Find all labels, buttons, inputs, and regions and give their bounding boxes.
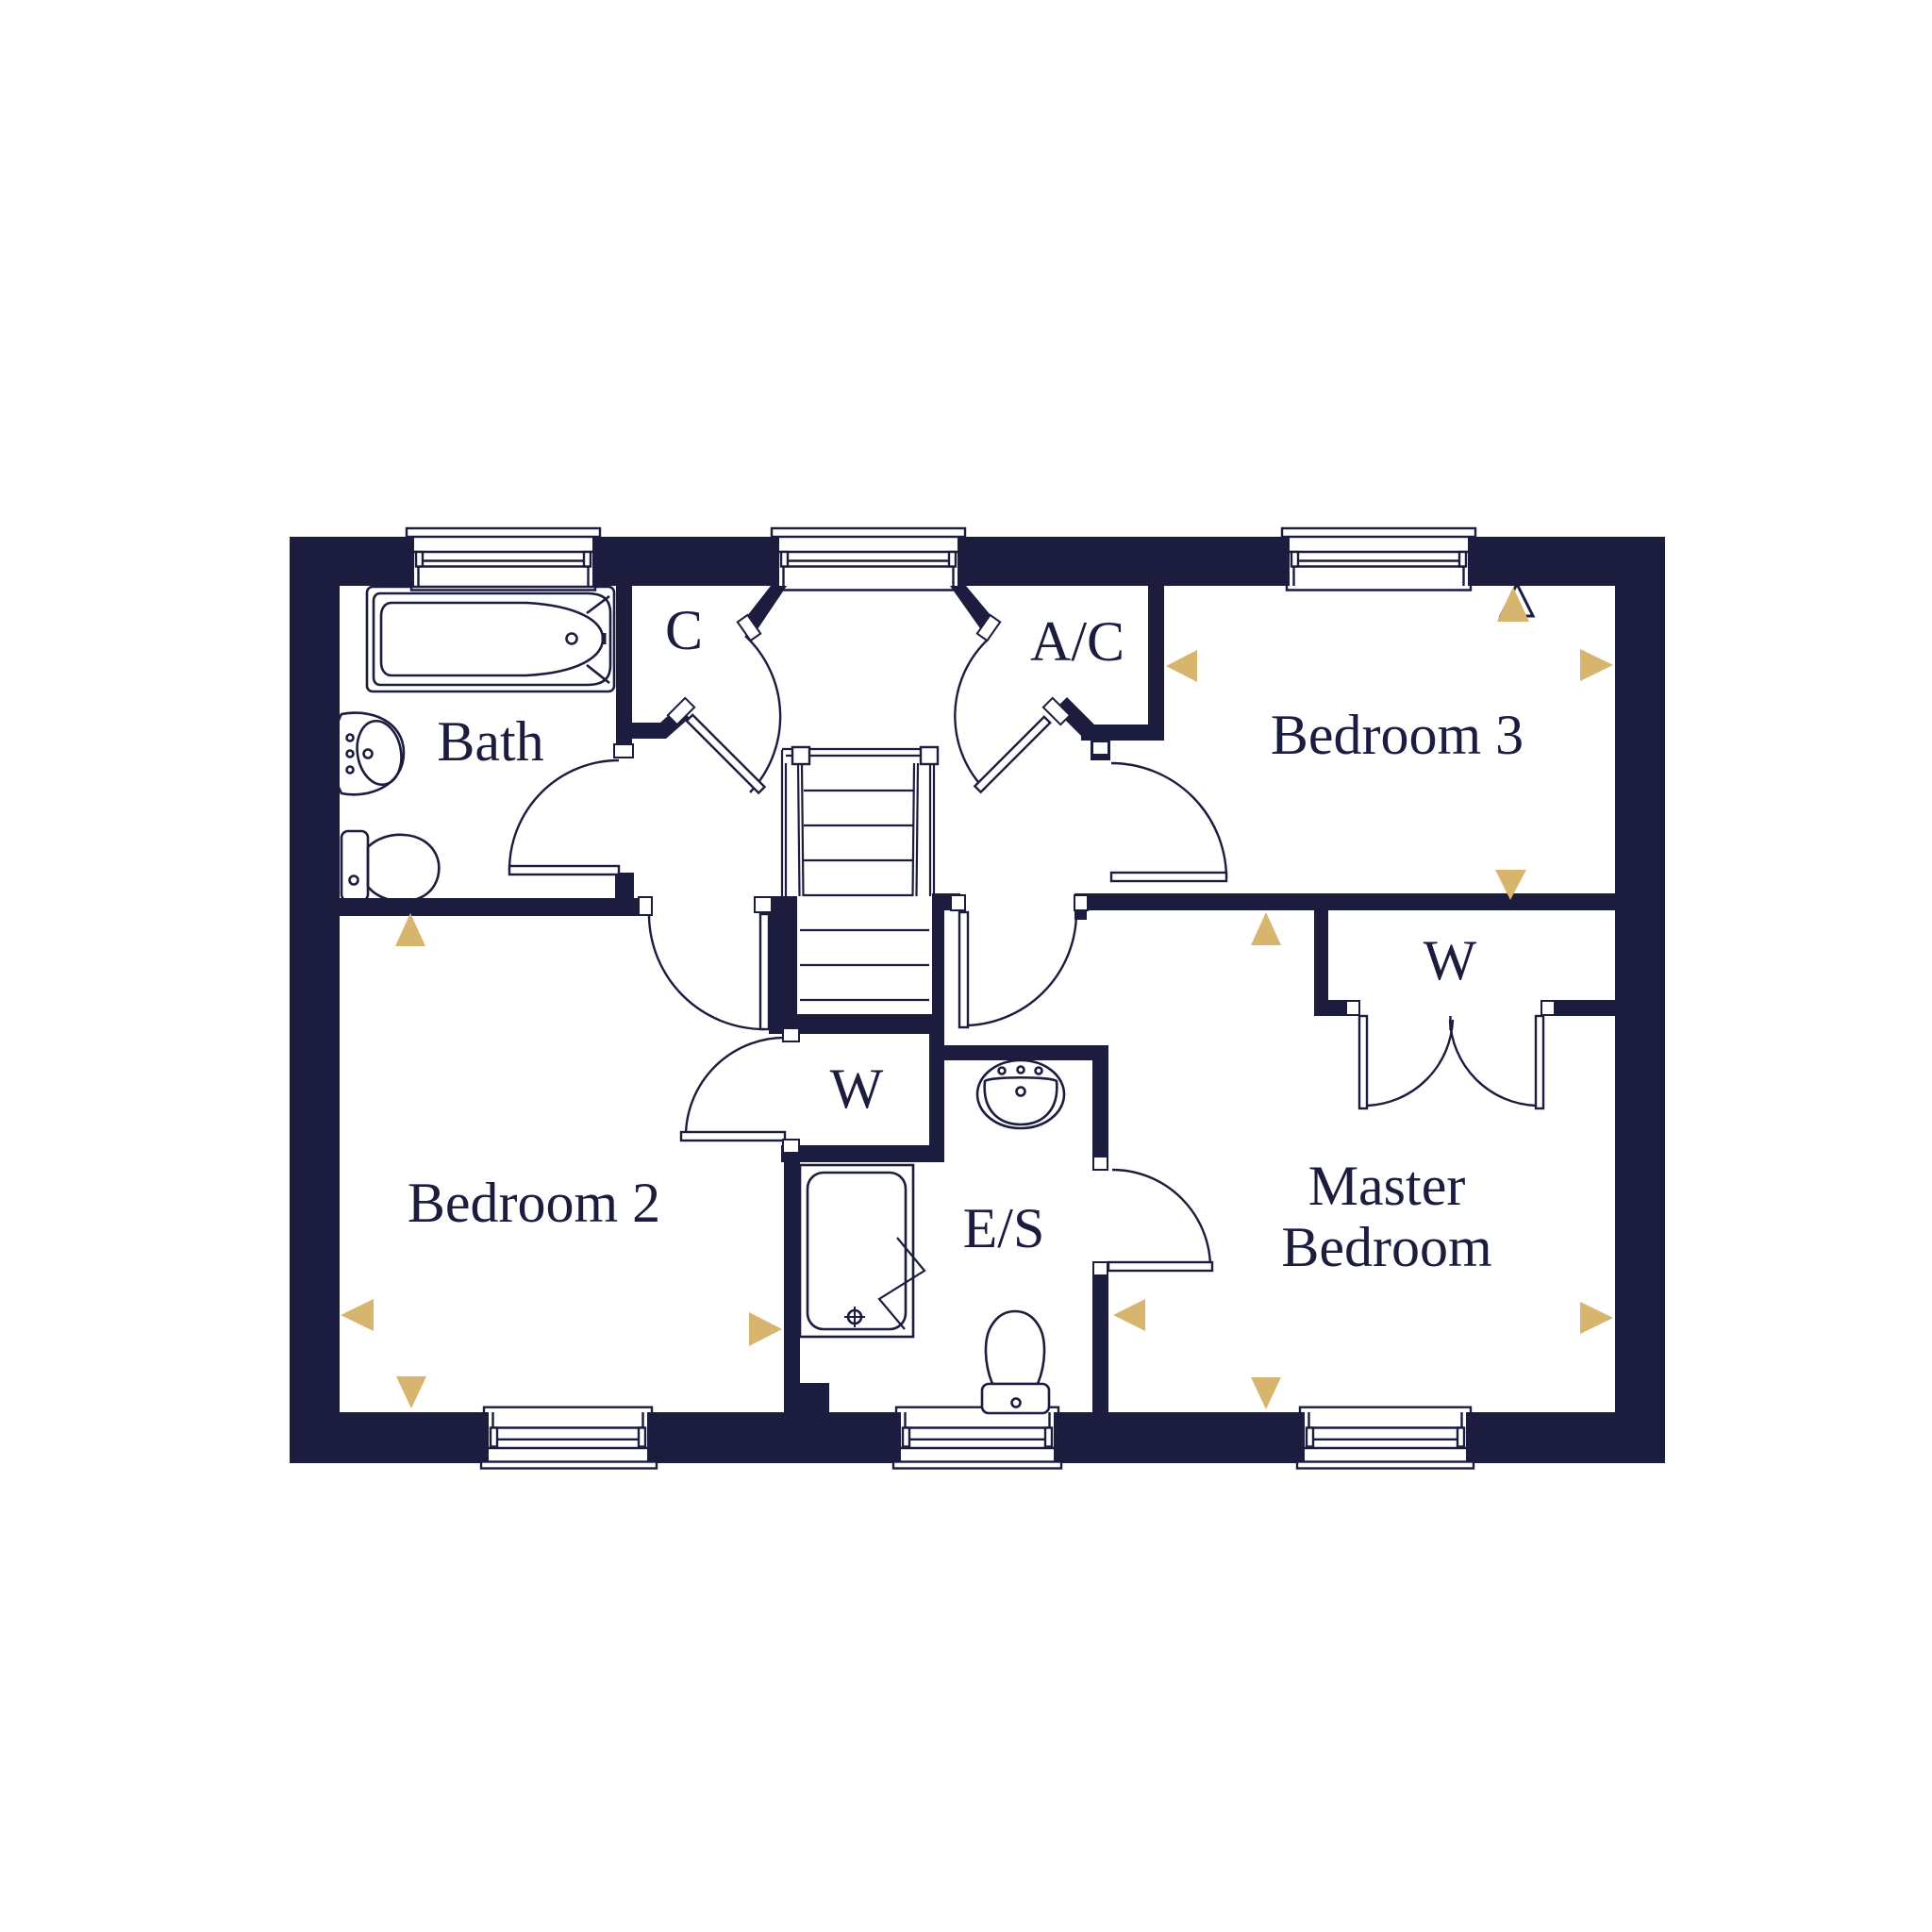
svg-text:W: W: [830, 1058, 884, 1120]
svg-text:Bath: Bath: [437, 710, 543, 773]
svg-text:Bedroom 2: Bedroom 2: [408, 1172, 660, 1234]
svg-text:E/S: E/S: [963, 1197, 1045, 1259]
svg-text:Master: Master: [1308, 1155, 1466, 1217]
svg-text:W: W: [1424, 929, 1477, 991]
svg-text:Bedroom 3: Bedroom 3: [1271, 704, 1524, 766]
svg-text:C: C: [665, 599, 703, 661]
svg-text:A/C: A/C: [1030, 610, 1124, 673]
svg-text:Bedroom: Bedroom: [1281, 1216, 1491, 1278]
